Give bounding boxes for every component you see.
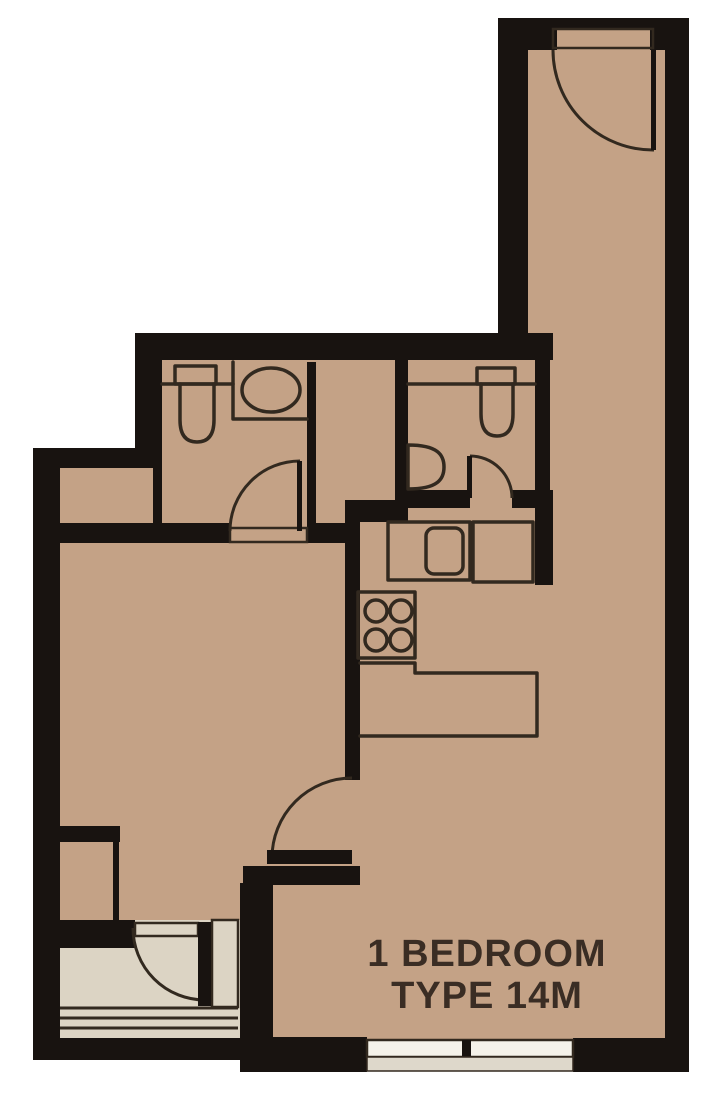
balcony-door-leaf xyxy=(198,922,211,1006)
wall-bathroom2-bottom-left xyxy=(395,490,470,508)
floor-plan: 1 BEDROOM TYPE 14M xyxy=(0,0,721,1100)
floor-entry-threshold xyxy=(552,28,656,50)
living-window-mullion xyxy=(462,1040,471,1057)
floor-plan-page: 1 BEDROOM TYPE 14M xyxy=(0,0,721,1100)
wall-bathroom2-right xyxy=(535,350,550,493)
balcony-sidelight-window xyxy=(212,920,238,1007)
wall-kitchen-right xyxy=(535,490,553,585)
wall-bathroom1-left xyxy=(135,333,162,468)
wall-bathroom1-right-thin xyxy=(307,362,316,533)
plan-title-line-2: TYPE 14M xyxy=(391,975,583,1017)
wall-bottom-right-of-window xyxy=(573,1038,689,1072)
wall-bedroom-bottom xyxy=(33,920,135,948)
bedroom-door-leaf xyxy=(267,850,352,864)
wall-bedroom-niche-thin xyxy=(113,842,119,922)
living-window-sill xyxy=(367,1057,573,1071)
bathroom1-door-leaf xyxy=(297,461,302,531)
wall-bathroom2-left xyxy=(395,360,408,508)
living-window-group xyxy=(367,1040,573,1071)
wall-right-outer xyxy=(665,18,689,1072)
wall-corridor-left xyxy=(498,18,528,355)
bathroom2-door-leaf xyxy=(467,456,472,498)
plan-title: 1 BEDROOM TYPE 14M xyxy=(367,933,606,1017)
wall-balcony-bottom xyxy=(33,1038,240,1060)
wall-living-step xyxy=(243,866,360,885)
entry-door-leaf xyxy=(651,50,656,150)
plan-title-line-1: 1 BEDROOM xyxy=(367,933,606,975)
wall-bedroom-niche-stub xyxy=(58,826,120,842)
wall-shaft-right-thin xyxy=(153,468,162,528)
wall-bathroom-block-top xyxy=(135,333,553,360)
wall-bottom-left-of-window xyxy=(240,1037,367,1072)
wall-bedroom-top-left xyxy=(55,523,230,543)
